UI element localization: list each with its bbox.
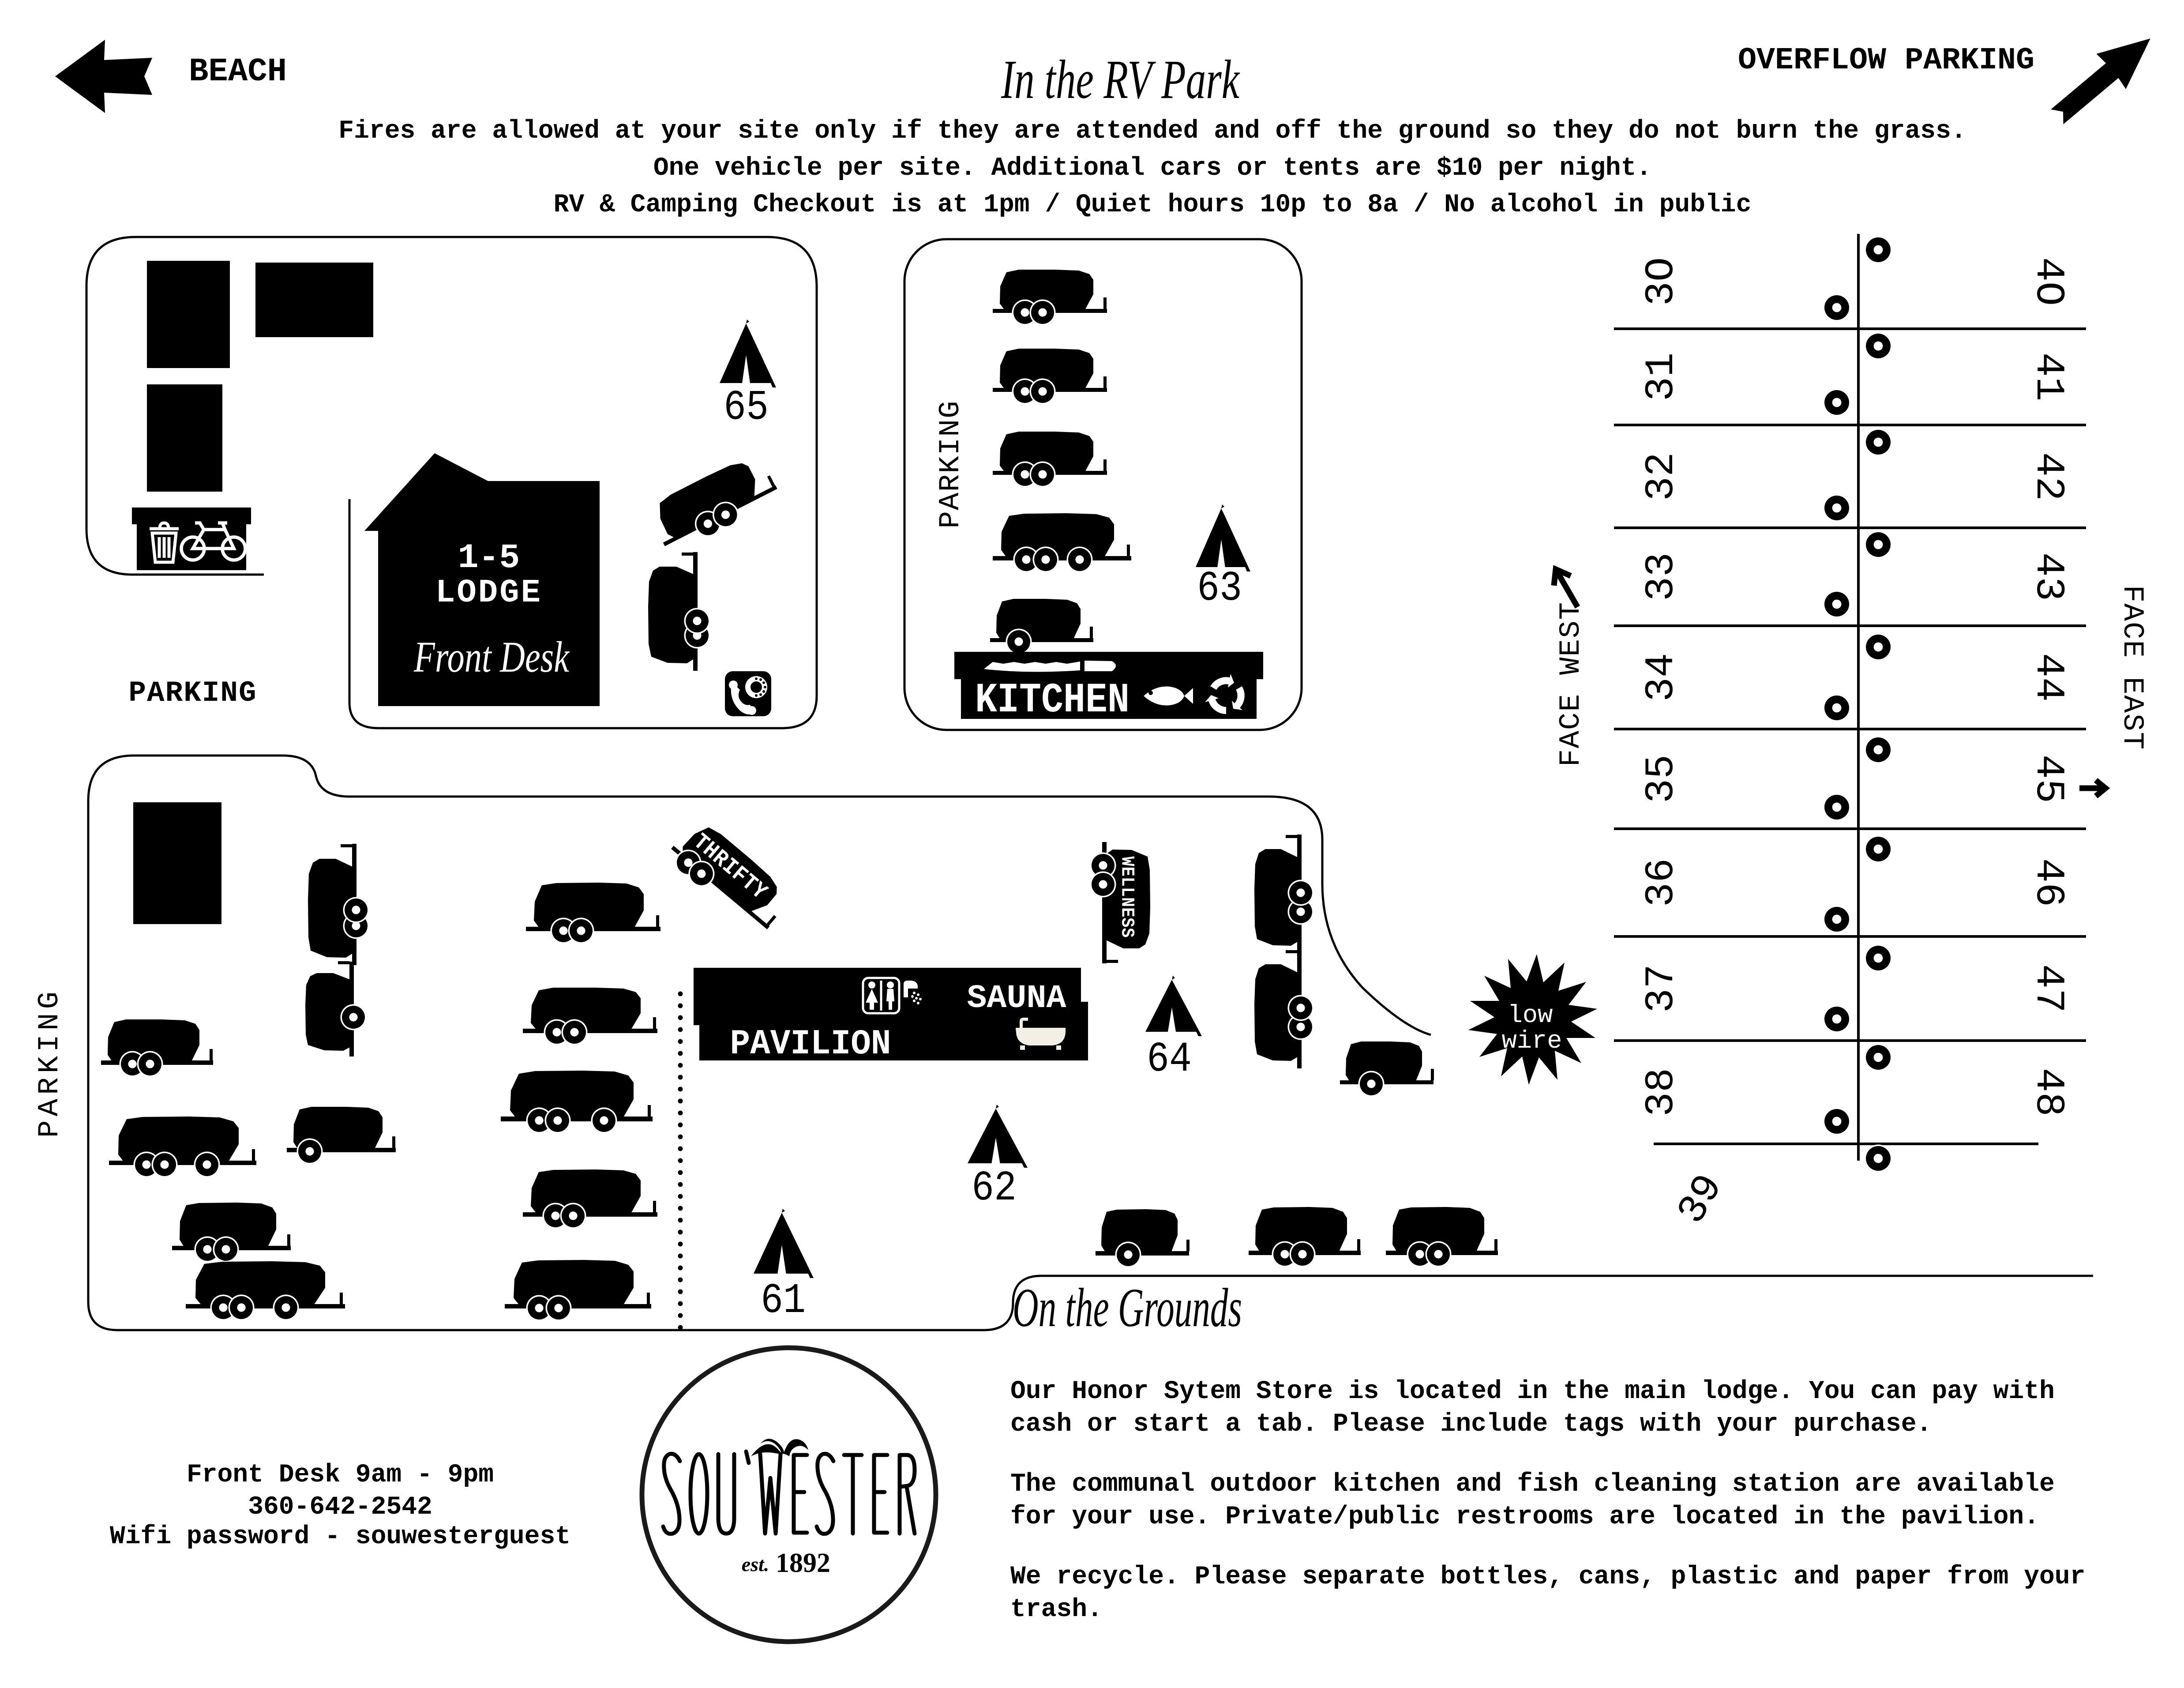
svg-text:KITCHEN: KITCHEN bbox=[975, 677, 1130, 724]
svg-text:PARKING: PARKING bbox=[128, 677, 257, 710]
svg-text:On the Grounds: On the Grounds bbox=[1013, 1278, 1242, 1338]
svg-text:Front Desk: Front Desk bbox=[413, 632, 570, 681]
svg-text:WELLNESS: WELLNESS bbox=[1116, 857, 1137, 938]
svg-text:One vehicle per site. Addition: One vehicle per site. Additional cars or… bbox=[653, 154, 1651, 183]
svg-text:61: 61 bbox=[761, 1277, 806, 1325]
svg-text:PAVILION: PAVILION bbox=[730, 1024, 891, 1064]
svg-text:LODGE: LODGE bbox=[435, 575, 542, 612]
svg-text:32: 32 bbox=[1638, 452, 1685, 501]
svg-text:PARKING: PARKING bbox=[33, 988, 66, 1138]
svg-text:The communal outdoor kitchen a: The communal outdoor kitchen and fish cl… bbox=[1010, 1470, 2055, 1499]
svg-text:35: 35 bbox=[1638, 755, 1685, 803]
svg-text:trash.: trash. bbox=[1010, 1595, 1103, 1624]
svg-text:63: 63 bbox=[1197, 564, 1242, 613]
svg-text:48: 48 bbox=[2025, 1068, 2071, 1117]
svg-text:Front Desk 9am - 9pm: Front Desk 9am - 9pm bbox=[187, 1461, 494, 1489]
svg-text:64: 64 bbox=[1147, 1035, 1192, 1083]
svg-text:OVERFLOW PARKING: OVERFLOW PARKING bbox=[1738, 43, 2034, 78]
svg-text:36: 36 bbox=[1638, 858, 1685, 907]
svg-text:45: 45 bbox=[2025, 755, 2071, 803]
svg-text:BEACH: BEACH bbox=[189, 53, 287, 90]
svg-text:cash or start a tab. Please in: cash or start a tab. Please include tags… bbox=[1010, 1410, 1932, 1439]
svg-text:34: 34 bbox=[1638, 653, 1685, 702]
svg-text:46: 46 bbox=[2025, 858, 2071, 907]
svg-text:31: 31 bbox=[1638, 353, 1685, 401]
svg-text:3O: 3O bbox=[1638, 257, 1685, 306]
svg-text:for your use. Private/public r: for your use. Private/public restrooms a… bbox=[1010, 1503, 2039, 1531]
svg-text:4O: 4O bbox=[2025, 257, 2071, 306]
svg-text:44: 44 bbox=[2025, 653, 2071, 702]
svg-text:65: 65 bbox=[724, 383, 769, 432]
svg-text:43: 43 bbox=[2025, 553, 2071, 601]
svg-text:42: 42 bbox=[2025, 452, 2071, 501]
svg-text:wire: wire bbox=[1502, 1027, 1562, 1056]
svg-text:PARKING: PARKING bbox=[934, 400, 967, 528]
svg-text:SAUNA: SAUNA bbox=[967, 980, 1067, 1017]
svg-text:1-5: 1-5 bbox=[458, 539, 520, 578]
svg-text:est.: est. bbox=[742, 1553, 769, 1575]
svg-text:Fires are allowed at your site: Fires are allowed at your site only if t… bbox=[338, 117, 1966, 146]
svg-text:low: low bbox=[1508, 1002, 1553, 1030]
svg-text:47: 47 bbox=[2025, 964, 2071, 1013]
svg-text:In the RV Park: In the RV Park bbox=[1001, 49, 1240, 110]
svg-text:Our Honor Sytem Store is locat: Our Honor Sytem Store is located in the … bbox=[1010, 1377, 2055, 1406]
svg-text:62: 62 bbox=[972, 1164, 1017, 1212]
svg-text:38: 38 bbox=[1638, 1068, 1685, 1117]
svg-text:360-642-2542: 360-642-2542 bbox=[248, 1493, 432, 1522]
svg-text:FACE WEST: FACE WEST bbox=[1554, 602, 1587, 767]
svg-text:RV & Camping Checkout is at 1p: RV & Camping Checkout is at 1pm / Quiet … bbox=[554, 191, 1752, 219]
svg-text:1892: 1892 bbox=[776, 1548, 830, 1578]
svg-text:37: 37 bbox=[1638, 964, 1685, 1013]
svg-text:Wifi password - souwesterguest: Wifi password - souwesterguest bbox=[110, 1523, 570, 1551]
svg-text:41: 41 bbox=[2025, 353, 2071, 401]
svg-text:We recycle. Please separate bo: We recycle. Please separate bottles, can… bbox=[1010, 1563, 2085, 1591]
svg-text:33: 33 bbox=[1638, 553, 1685, 601]
svg-text:FACE EAST: FACE EAST bbox=[2116, 585, 2149, 750]
